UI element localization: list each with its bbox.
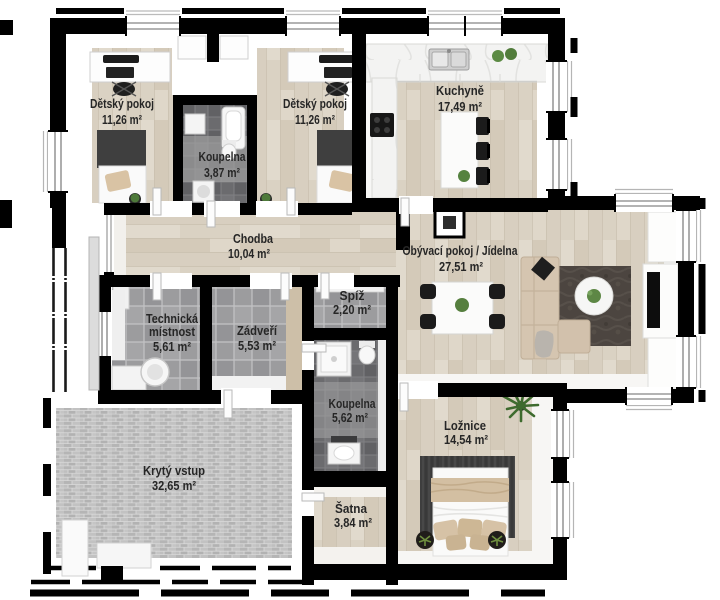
svg-text:Dětský pokoj: Dětský pokoj: [90, 96, 154, 111]
svg-text:Chodba: Chodba: [233, 231, 274, 246]
svg-text:5,61 m²: 5,61 m²: [153, 340, 191, 354]
svg-text:5,53 m²: 5,53 m²: [238, 339, 276, 353]
svg-text:Obývací pokoj / Jídelna: Obývací pokoj / Jídelna: [403, 243, 519, 258]
svg-text:3,84 m²: 3,84 m²: [334, 516, 372, 530]
svg-text:10,04 m²: 10,04 m²: [228, 247, 270, 261]
svg-text:Zádveří: Zádveří: [237, 323, 277, 338]
svg-text:Dětský pokoj: Dětský pokoj: [283, 96, 347, 111]
svg-text:místnost: místnost: [149, 324, 196, 339]
svg-text:2,20 m²: 2,20 m²: [333, 303, 371, 317]
svg-text:3,87 m²: 3,87 m²: [204, 166, 240, 180]
svg-text:11,26 m²: 11,26 m²: [295, 113, 335, 127]
svg-text:14,54 m²: 14,54 m²: [444, 433, 488, 447]
svg-text:32,65 m²: 32,65 m²: [152, 479, 196, 493]
svg-text:11,26 m²: 11,26 m²: [102, 113, 142, 127]
svg-text:27,51 m²: 27,51 m²: [439, 260, 483, 274]
svg-text:17,49 m²: 17,49 m²: [438, 100, 482, 114]
svg-text:Kuchyně: Kuchyně: [436, 83, 484, 98]
svg-text:Šatna: Šatna: [335, 501, 368, 516]
svg-text:Koupelna: Koupelna: [329, 396, 377, 411]
svg-text:Ložnice: Ložnice: [444, 418, 486, 433]
svg-text:Koupelna: Koupelna: [199, 149, 247, 164]
svg-text:Krytý vstup: Krytý vstup: [143, 463, 205, 478]
svg-text:5,62 m²: 5,62 m²: [332, 411, 368, 425]
svg-text:Spíž: Spíž: [340, 288, 365, 303]
